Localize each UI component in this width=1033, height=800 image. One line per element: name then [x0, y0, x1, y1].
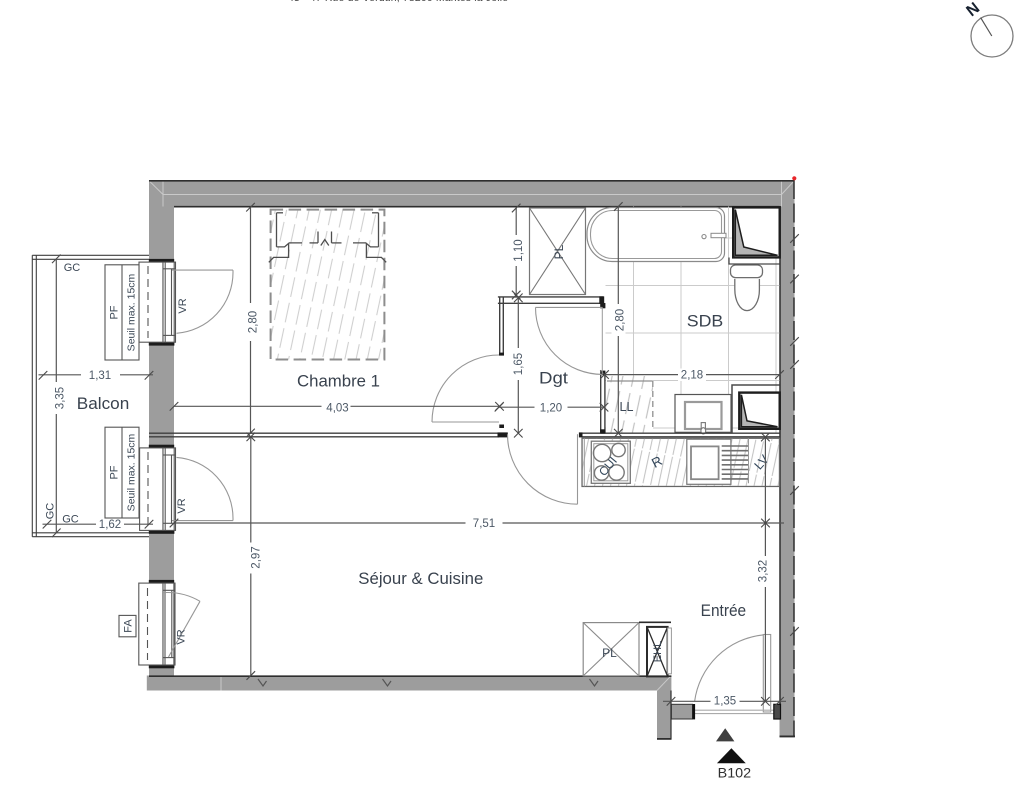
- svg-text:FA: FA: [123, 619, 135, 633]
- svg-text:Entrée: Entrée: [701, 601, 747, 620]
- svg-text:VR: VR: [176, 629, 188, 644]
- svg-text:GC: GC: [62, 514, 79, 526]
- svg-text:2,80: 2,80: [247, 311, 259, 333]
- svg-text:2,18: 2,18: [681, 370, 703, 382]
- svg-text:Chambre 1: Chambre 1: [297, 372, 380, 391]
- svg-text:1,62: 1,62: [99, 519, 121, 531]
- svg-text:Seuil max. 15cm: Seuil max. 15cm: [126, 433, 138, 511]
- svg-text:3,35: 3,35: [55, 387, 67, 409]
- svg-text:1,35: 1,35: [714, 696, 736, 708]
- svg-text:SDB: SDB: [687, 312, 724, 331]
- svg-text:EHL: EHL: [652, 641, 664, 662]
- svg-text:VR: VR: [176, 498, 188, 513]
- svg-text:2,80: 2,80: [615, 309, 627, 331]
- svg-text:1,65: 1,65: [513, 353, 525, 375]
- svg-text:PL: PL: [552, 244, 566, 259]
- svg-text:4,03: 4,03: [326, 403, 348, 415]
- svg-text:Seuil max. 15cm: Seuil max. 15cm: [126, 273, 138, 351]
- svg-text:GC: GC: [45, 503, 57, 520]
- svg-text:LL: LL: [620, 400, 634, 414]
- svg-text:VR: VR: [177, 298, 189, 313]
- svg-text:Balcon: Balcon: [77, 394, 130, 413]
- svg-text:PF: PF: [109, 305, 121, 319]
- svg-text:Dgt: Dgt: [539, 368, 568, 387]
- svg-text:B102: B102: [718, 764, 752, 780]
- svg-text:Séjour & Cuisine: Séjour & Cuisine: [358, 569, 483, 588]
- svg-text:1,20: 1,20: [540, 403, 562, 415]
- svg-text:GC: GC: [64, 262, 81, 274]
- svg-text:1,31: 1,31: [89, 370, 111, 382]
- svg-text:2,97: 2,97: [251, 546, 263, 568]
- svg-text:N: N: [963, 0, 983, 20]
- svg-text:1,10: 1,10: [513, 239, 525, 261]
- svg-text:3,32: 3,32: [758, 560, 770, 582]
- svg-text:PF: PF: [109, 465, 121, 479]
- svg-text:PL: PL: [602, 646, 617, 660]
- svg-text:7,51: 7,51: [473, 518, 495, 530]
